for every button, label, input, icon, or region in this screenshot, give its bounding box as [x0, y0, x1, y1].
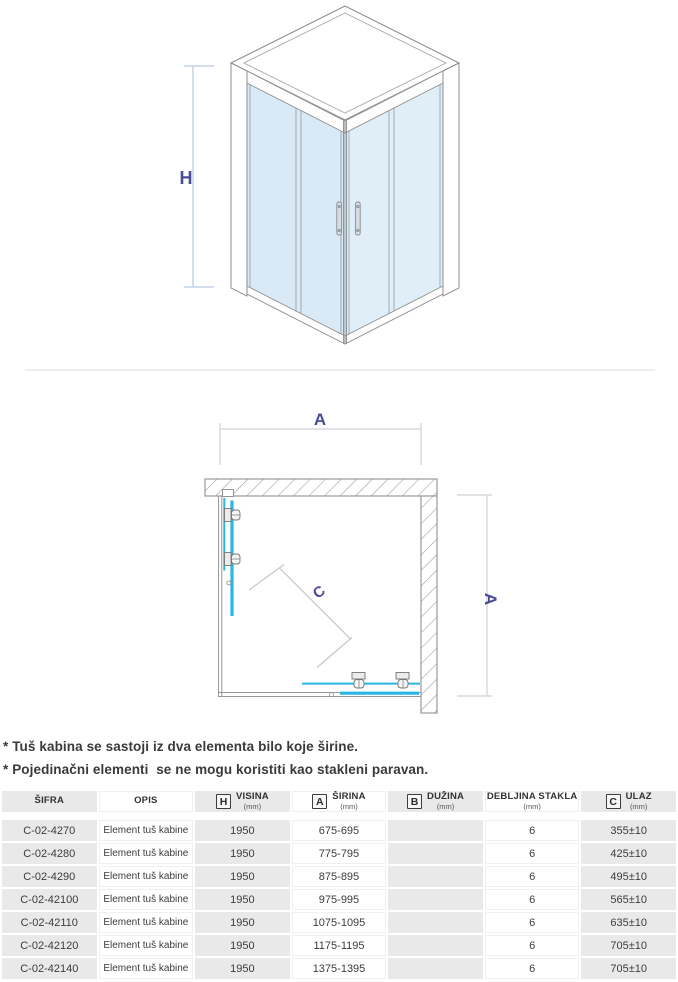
header-cell: DEBLJINA STAKLA(mm): [485, 791, 580, 812]
table-cell: 6: [485, 889, 580, 910]
entry-dimension: C: [249, 565, 352, 668]
table-cell: 1950: [195, 958, 290, 979]
header-unit: (mm): [630, 803, 648, 811]
table-cell: 775-795: [292, 843, 387, 864]
table-cell: 1950: [195, 912, 290, 933]
table-cell: 705±10: [581, 958, 676, 979]
table-cell: 875-895: [292, 866, 387, 887]
table-cell: Element tuš kabine: [99, 866, 194, 887]
height-dimension-label: H: [180, 168, 193, 188]
note-line: * Tuš kabina se sastoji iz dva elementa …: [3, 735, 428, 758]
door-handle-right: [355, 202, 360, 235]
header-cell: HVISINA(mm): [195, 791, 290, 812]
table-cell: C-02-42100: [2, 889, 97, 910]
table-cell: [388, 866, 483, 887]
table-cell: C-02-4270: [2, 820, 97, 841]
wall-top: [205, 479, 437, 496]
header-label-wrap: DUŽINA(mm): [427, 792, 464, 811]
header-label-wrap: OPIS: [134, 796, 158, 806]
screw-detail-left: [227, 581, 231, 585]
header-label-wrap: ULAZ(mm): [626, 792, 652, 811]
table-row: C-02-4280Element tuš kabine1950775-79564…: [2, 843, 676, 864]
depth-dimension-label: A: [481, 593, 500, 605]
table-cell: Element tuš kabine: [99, 889, 194, 910]
roller-bottom-1: [352, 673, 365, 689]
table-row: C-02-4270Element tuš kabine1950675-69563…: [2, 820, 676, 841]
note-line: * Pojedinačni elementi se ne mogu korist…: [3, 758, 428, 781]
depth-dimension: A: [457, 495, 500, 696]
header-unit: (mm): [340, 803, 358, 811]
table-cell: [388, 843, 483, 864]
dimension-letter-box: H: [216, 794, 231, 809]
entry-dimension-label: C: [310, 582, 329, 602]
header-unit: (mm): [523, 803, 541, 811]
width-dimension-label: A: [314, 410, 326, 429]
table-cell: [388, 935, 483, 956]
table-cell: 635±10: [581, 912, 676, 933]
table-cell: 6: [485, 820, 580, 841]
header-cell: ŠIFRA: [2, 791, 97, 812]
table-cell: 495±10: [581, 866, 676, 887]
table-cell: C-02-42120: [2, 935, 97, 956]
table-cell: [388, 958, 483, 979]
header-label-wrap: ŠIFRA: [35, 796, 65, 806]
table-cell: 1950: [195, 820, 290, 841]
height-dimension: H: [180, 66, 215, 287]
table-cell: 675-695: [292, 820, 387, 841]
header-cell: BDUŽINA(mm): [388, 791, 483, 812]
table-row: C-02-42140Element tuš kabine19501375-139…: [2, 958, 676, 979]
width-dimension: A: [220, 410, 421, 465]
table-cell: 425±10: [581, 843, 676, 864]
dimension-letter-box: C: [606, 794, 621, 809]
table-cell: C-02-4290: [2, 866, 97, 887]
table-header-row: ŠIFRAOPISHVISINA(mm)AŠIRINA(mm)BDUŽINA(m…: [2, 791, 676, 812]
table-cell: Element tuš kabine: [99, 935, 194, 956]
table-cell: 6: [485, 843, 580, 864]
table-row: C-02-4290Element tuš kabine1950875-89564…: [2, 866, 676, 887]
table-cell: 6: [485, 958, 580, 979]
table-cell: 1950: [195, 843, 290, 864]
table-cell: [388, 912, 483, 933]
table-cell: [388, 889, 483, 910]
top-view-diagram: A: [0, 400, 678, 732]
wall-profile-left: [231, 63, 247, 296]
header-label: ŠIFRA: [35, 796, 65, 806]
table-cell: C-02-4280: [2, 843, 97, 864]
header-cell: AŠIRINA(mm): [292, 791, 387, 812]
notes: * Tuš kabina se sastoji iz dva elementa …: [3, 735, 428, 781]
table-cell: 705±10: [581, 935, 676, 956]
header-label-wrap: VISINA(mm): [236, 792, 269, 811]
wall-right: [421, 496, 437, 713]
table-cell: 6: [485, 935, 580, 956]
table-cell: 6: [485, 866, 580, 887]
table-cell: 6: [485, 912, 580, 933]
table-row: C-02-42100Element tuš kabine1950975-9956…: [2, 889, 676, 910]
table-cell: [388, 820, 483, 841]
door-handle-left: [337, 202, 342, 235]
header-unit: (mm): [244, 803, 262, 811]
header-label-wrap: DEBLJINA STAKLA(mm): [487, 792, 578, 811]
roller-left-1: [225, 509, 241, 522]
table-cell: 975-995: [292, 889, 387, 910]
table-cell: 1950: [195, 935, 290, 956]
table-cell: Element tuš kabine: [99, 912, 194, 933]
table-cell: 1375-1395: [292, 958, 387, 979]
spec-table: ŠIFRAOPISHVISINA(mm)AŠIRINA(mm)BDUŽINA(m…: [2, 791, 676, 981]
table-cell: 1950: [195, 866, 290, 887]
section-divider: [25, 369, 655, 371]
header-cell: OPIS: [99, 791, 194, 812]
header-label: OPIS: [134, 796, 158, 806]
table-cell: 1175-1195: [292, 935, 387, 956]
table-cell: Element tuš kabine: [99, 958, 194, 979]
dimension-letter-box: A: [312, 794, 327, 809]
table-cell: 1075-1095: [292, 912, 387, 933]
isometric-shower-diagram: H: [0, 0, 678, 372]
table-cell: 565±10: [581, 889, 676, 910]
table-row: C-02-42110Element tuš kabine19501075-109…: [2, 912, 676, 933]
table-row: C-02-42120Element tuš kabine19501175-119…: [2, 935, 676, 956]
header-unit: (mm): [437, 803, 455, 811]
table-body: C-02-4270Element tuš kabine1950675-69563…: [2, 820, 676, 979]
table-cell: Element tuš kabine: [99, 820, 194, 841]
table-cell: 355±10: [581, 820, 676, 841]
dimension-letter-box: B: [407, 794, 422, 809]
table-cell: C-02-42140: [2, 958, 97, 979]
table-cell: C-02-42110: [2, 912, 97, 933]
roller-bottom-2: [396, 673, 409, 689]
header-label-wrap: ŠIRINA(mm): [332, 792, 365, 811]
roller-left-2: [225, 553, 241, 566]
screw-detail-bottom: [330, 693, 334, 697]
header-cell: CULAZ(mm): [581, 791, 676, 812]
table-cell: 1950: [195, 889, 290, 910]
wall-profile-right: [443, 63, 459, 296]
table-cell: Element tuš kabine: [99, 843, 194, 864]
